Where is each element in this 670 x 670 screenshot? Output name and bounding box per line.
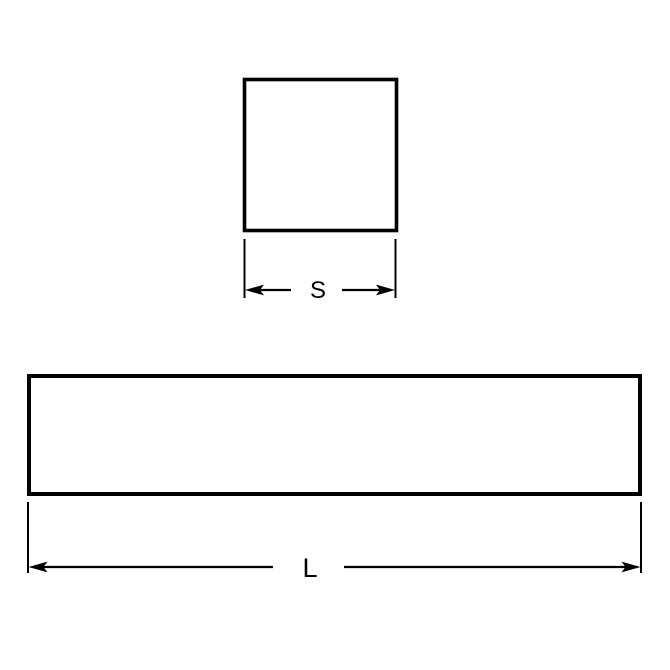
technical-drawing-canvas: S L — [0, 0, 670, 670]
l-dimension-label: L — [302, 553, 317, 583]
keystock-dimension-diagram: S L — [0, 0, 670, 670]
square-cross-section-outline — [245, 80, 397, 231]
s-dimension-label: S — [310, 277, 326, 304]
bar-side-view-outline — [29, 376, 640, 494]
